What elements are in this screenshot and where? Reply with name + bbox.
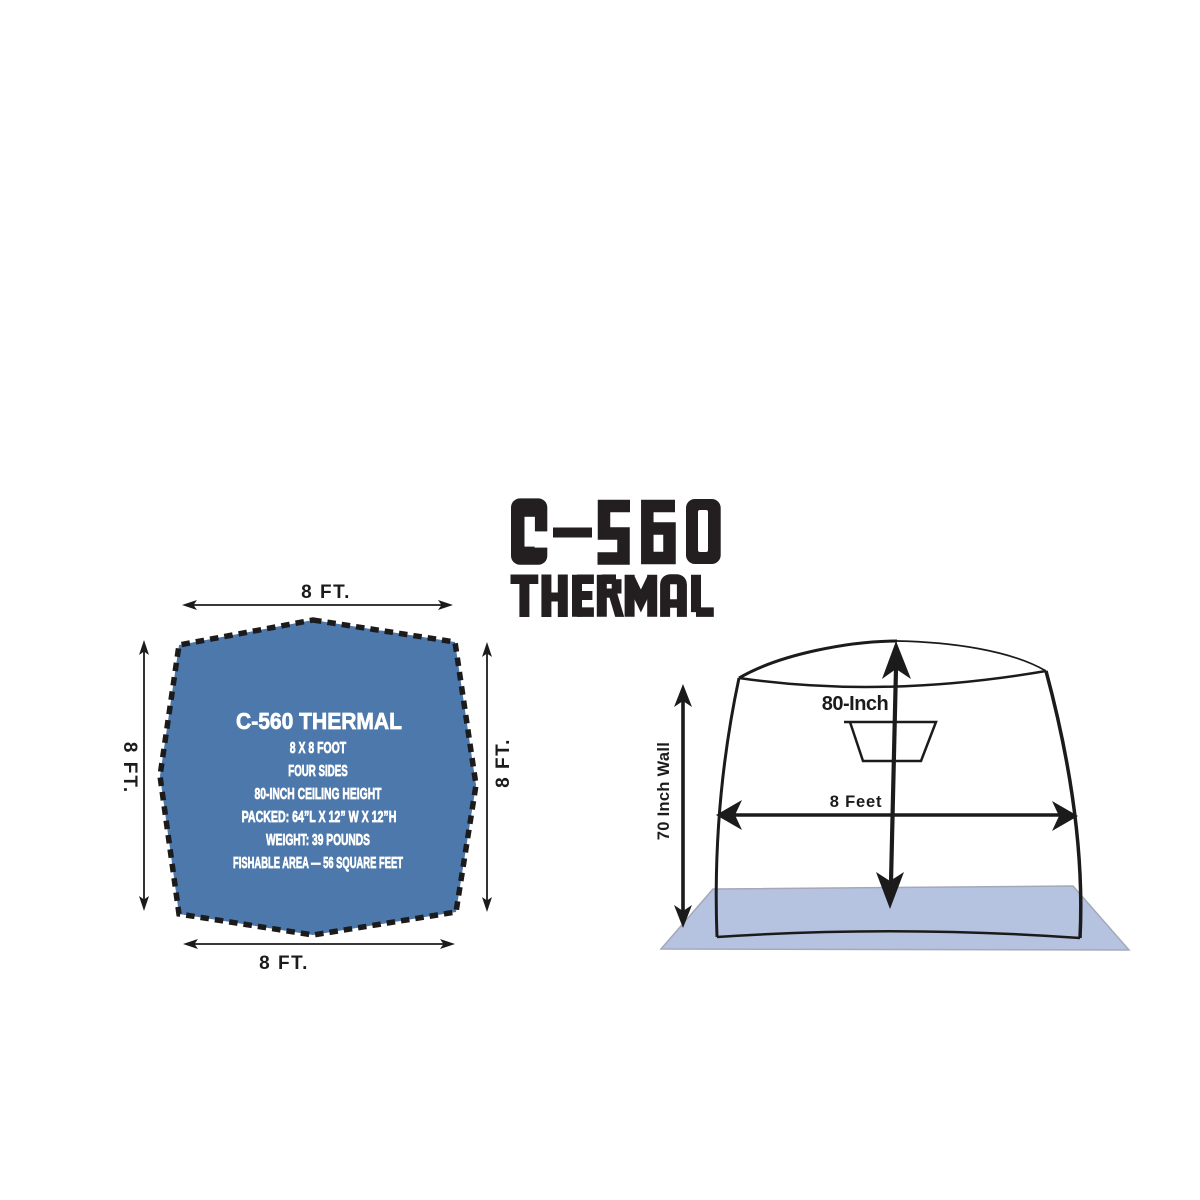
svg-text:80-INCH CEILING HEIGHT: 80-INCH CEILING HEIGHT	[255, 785, 382, 803]
svg-text:8 X 8 FOOT: 8 X 8 FOOT	[290, 739, 346, 757]
svg-text:WEIGHT: 39 POUNDS: WEIGHT: 39 POUNDS	[266, 831, 370, 849]
svg-text:8 FT.: 8 FT.	[259, 953, 309, 974]
svg-text:FOUR SIDES: FOUR SIDES	[288, 762, 348, 780]
svg-text:70 Inch Wall: 70 Inch Wall	[655, 742, 673, 840]
svg-text:PACKED: 64”L X 12” W X 12”H: PACKED: 64”L X 12” W X 12”H	[242, 808, 397, 825]
svg-text:80-Inch: 80-Inch	[822, 693, 889, 715]
svg-text:8 FT.: 8 FT.	[301, 582, 351, 603]
svg-text:8 FT.: 8 FT.	[119, 742, 140, 794]
svg-text:8 FT.: 8 FT.	[493, 738, 514, 788]
svg-text:FISHABLE AREA — 56 SQUARE FEET: FISHABLE AREA — 56 SQUARE FEET	[233, 854, 403, 872]
svg-text:8 Feet: 8 Feet	[830, 793, 883, 811]
svg-text:C-560 THERMAL: C-560 THERMAL	[236, 708, 402, 734]
